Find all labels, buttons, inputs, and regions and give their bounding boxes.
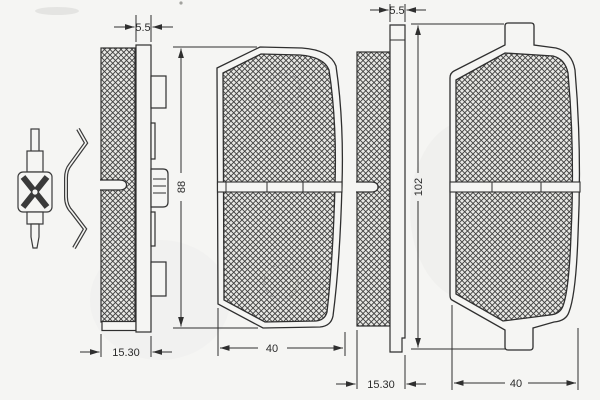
wear-indicator-stem-bottom — [31, 224, 39, 248]
wear-indicator-neck — [27, 151, 43, 172]
right-pad-side-view — [356, 25, 405, 352]
dim-label-left-friction-width: 40 — [266, 343, 278, 355]
left-pad-front-view — [217, 47, 342, 328]
dim-label-left-plate-thickness: 5.5 — [135, 22, 150, 34]
dim-label-right-plate-thickness: 5.5 — [389, 5, 404, 17]
right-pad-front-view — [450, 23, 580, 350]
right-front-groove — [450, 182, 580, 192]
dim-label-right-assembly-thickness: 15.30 — [367, 379, 395, 391]
left-side-backplate — [136, 45, 151, 332]
technical-drawing-canvas: 5.5 88 15.30 40 5.5 102 15.30 40 — [0, 0, 600, 400]
right-side-backplate — [390, 25, 405, 352]
left-pad-side-view — [100, 45, 168, 332]
dim-label-right-friction-width: 40 — [510, 378, 522, 390]
dim-label-left-pad-height: 88 — [176, 181, 188, 193]
wear-indicator-stem-top — [31, 129, 39, 152]
left-side-groove — [100, 180, 127, 190]
left-side-piston-clip — [151, 169, 168, 207]
dim-label-left-assembly-thickness: 15.30 — [112, 347, 140, 359]
dim-label-right-pad-height: 102 — [413, 178, 425, 196]
left-side-lug-bottom — [151, 262, 166, 296]
left-side-plate-flange — [102, 322, 136, 331]
left-front-groove — [218, 182, 343, 192]
left-side-lug-top — [151, 76, 166, 108]
left-side-shim-edge-bottom — [151, 212, 155, 246]
left-side-shim-edge-top — [151, 123, 155, 159]
wear-indicator-neck-bottom — [27, 212, 43, 224]
right-side-groove — [356, 182, 378, 192]
